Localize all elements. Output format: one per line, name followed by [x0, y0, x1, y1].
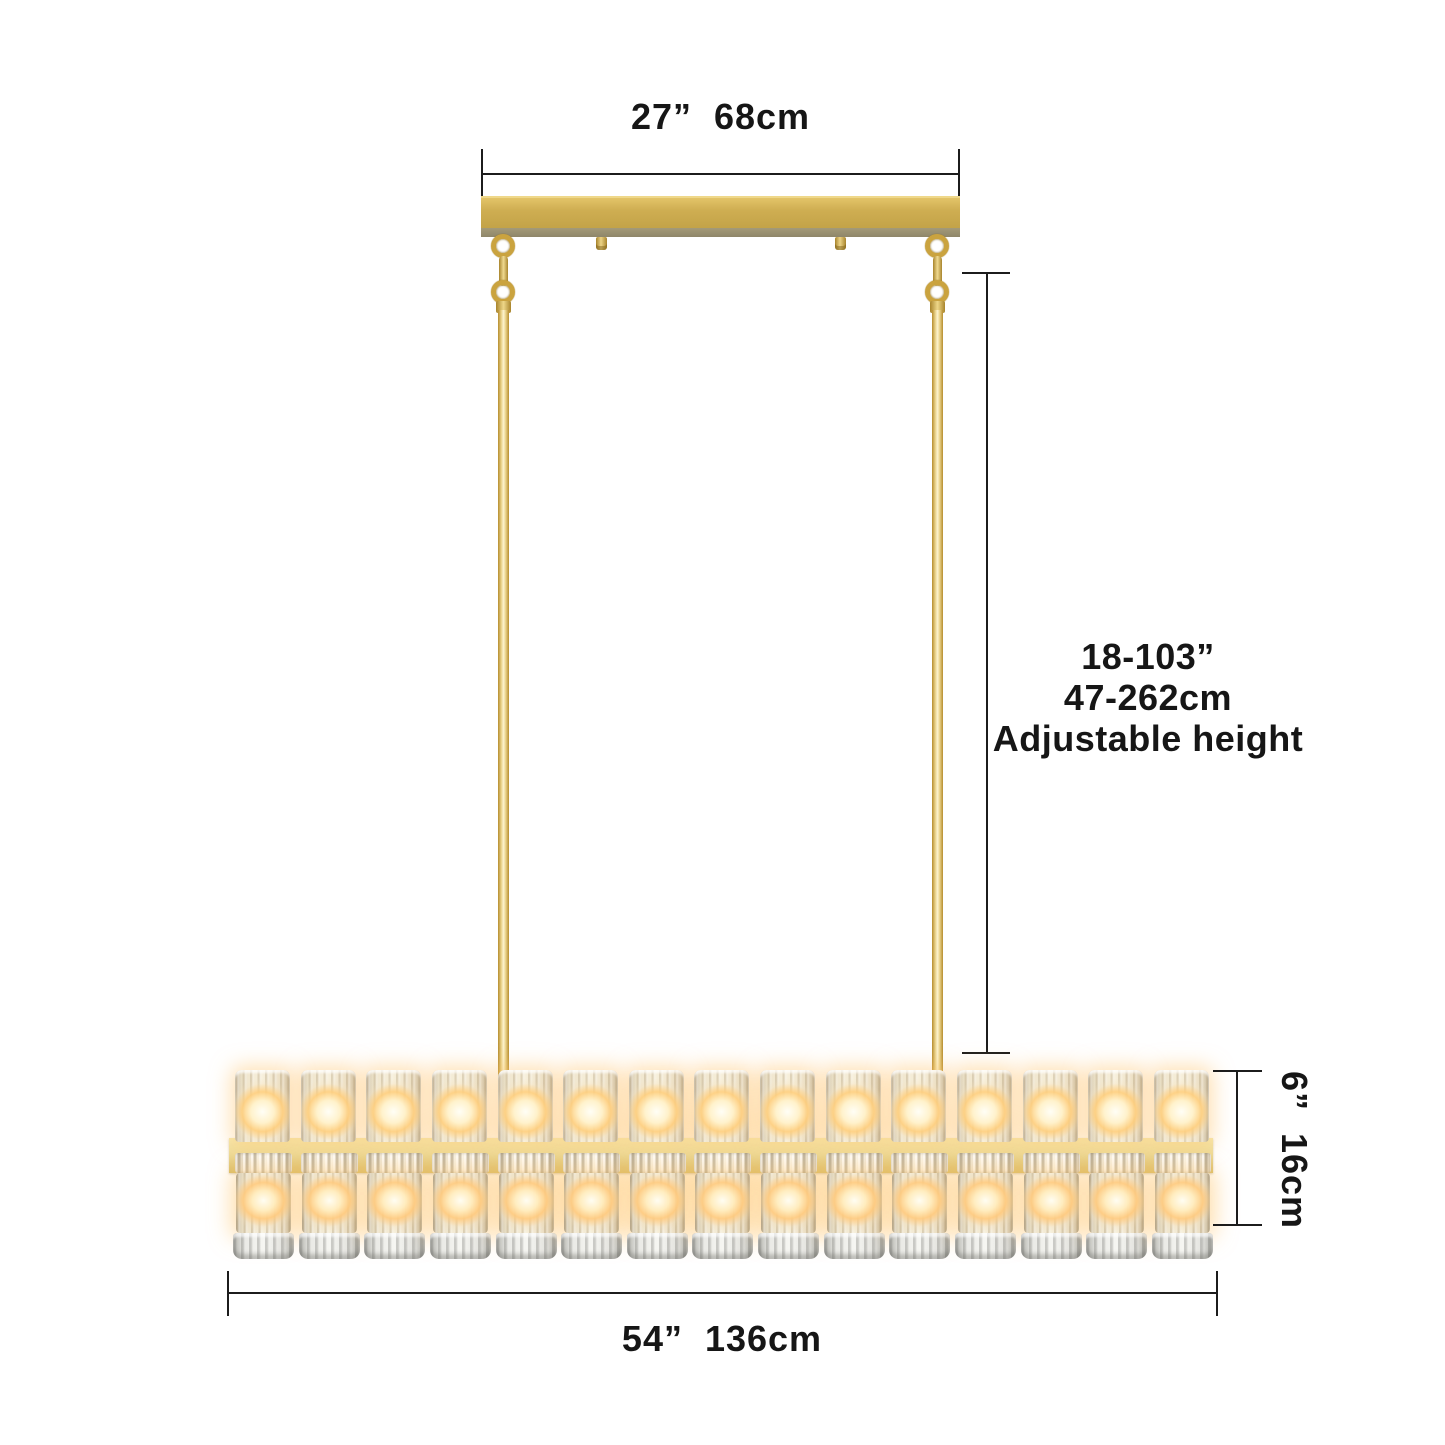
crystal-shade-bottom — [302, 1153, 357, 1259]
crystal-shade-top — [563, 1070, 618, 1142]
crystal-shade-body — [630, 1173, 685, 1233]
crystal-shade-foot — [692, 1233, 753, 1259]
crystal-shade-bottom — [236, 1153, 291, 1259]
crystal-shade-bottom — [695, 1153, 750, 1259]
crystal-shade-cap — [432, 1153, 489, 1173]
height-note: Adjustable height — [958, 718, 1338, 759]
crystal-shade-foot — [889, 1233, 950, 1259]
crystal-shade-foot — [758, 1233, 819, 1259]
crystal-shade-body — [1024, 1173, 1079, 1233]
crystal-shade-body — [695, 1173, 750, 1233]
crystal-shade-body — [1089, 1173, 1144, 1233]
crystal-shade-top — [498, 1070, 553, 1142]
crystal-shade-foot — [1086, 1233, 1147, 1259]
crystal-shade-top — [301, 1070, 356, 1142]
crystal-shade-bottom — [958, 1153, 1013, 1259]
fixture-width-dimension-line — [228, 1292, 1218, 1294]
ceiling-canopy — [481, 196, 960, 228]
crystal-shade-bottom — [1024, 1153, 1079, 1259]
crystal-shade-cap — [629, 1153, 686, 1173]
crystal-shade-body — [367, 1173, 422, 1233]
fixture-height-label: 6” 16cm — [1273, 1071, 1315, 1229]
crystal-shade-foot — [1152, 1233, 1213, 1259]
crystal-shade-bottom — [761, 1153, 816, 1259]
fixture-height-dimension-line — [1236, 1070, 1238, 1226]
crystal-shade-foot — [824, 1233, 885, 1259]
crystal-shade-body — [236, 1173, 291, 1233]
crystal-shade-cap — [826, 1153, 883, 1173]
crystal-shade-foot — [1021, 1233, 1082, 1259]
crystal-shade-top — [826, 1070, 881, 1142]
crystal-shade-top — [694, 1070, 749, 1142]
crystal-shade-cap — [301, 1153, 358, 1173]
crystal-shade-bottom — [827, 1153, 882, 1259]
crystal-shade-body — [433, 1173, 488, 1233]
crystal-shade-top — [629, 1070, 684, 1142]
crystal-shade-top — [891, 1070, 946, 1142]
fixture-width-tick-right — [1216, 1271, 1218, 1316]
crystal-shade-body — [499, 1173, 554, 1233]
crystal-shade-cap — [1154, 1153, 1211, 1173]
fixture-width-label: 54” 136cm — [472, 1318, 972, 1360]
crystal-shade-bottom — [630, 1153, 685, 1259]
crystal-shade-bottom — [1089, 1153, 1144, 1259]
crystal-shade-foot — [364, 1233, 425, 1259]
crystal-shade-cap — [957, 1153, 1014, 1173]
crystal-shade-body — [564, 1173, 619, 1233]
crystal-shade-top — [957, 1070, 1012, 1142]
ceiling-canopy-underside — [481, 228, 960, 237]
crystal-shade-body — [302, 1173, 357, 1233]
crystal-shade-cap — [760, 1153, 817, 1173]
canopy-width-tick-left — [481, 149, 483, 197]
hanger-rod-left — [498, 310, 509, 1140]
crystal-shade-cap — [563, 1153, 620, 1173]
crystal-shade-cap — [1088, 1153, 1145, 1173]
hanger-rod-right — [932, 310, 943, 1140]
crystal-shade-body — [761, 1173, 816, 1233]
canopy-width-dimension-line — [482, 173, 959, 175]
canopy-screw-right — [835, 237, 846, 250]
crystal-shade-cap — [891, 1153, 948, 1173]
crystal-shade-bottom — [892, 1153, 947, 1259]
canopy-width-tick-right — [958, 149, 960, 197]
fixture-height-tick-bottom — [1213, 1224, 1262, 1226]
chandelier-dimension-diagram: 27” 68cm 18-103” 47-262cm Adjustable hei… — [0, 0, 1445, 1445]
crystal-shade-top — [1023, 1070, 1078, 1142]
canopy-width-label: 27” 68cm — [481, 96, 960, 138]
crystal-shade-foot — [561, 1233, 622, 1259]
hanger-ring-top-right — [925, 234, 949, 258]
crystal-shade-foot — [233, 1233, 294, 1259]
height-range-cm: 47-262cm — [958, 677, 1338, 718]
crystal-shade-cap — [498, 1153, 555, 1173]
crystal-shade-top — [235, 1070, 290, 1142]
crystal-shade-foot — [627, 1233, 688, 1259]
canopy-screw-left — [596, 237, 607, 250]
crystal-shade-bottom — [499, 1153, 554, 1259]
crystal-shade-bottom — [433, 1153, 488, 1259]
crystal-shade-top — [760, 1070, 815, 1142]
height-range-inches: 18-103” — [958, 636, 1338, 677]
crystal-shade-cap — [235, 1153, 292, 1173]
crystal-shade-bottom — [564, 1153, 619, 1259]
crystal-shade-bottom — [367, 1153, 422, 1259]
crystal-shade-body — [892, 1173, 947, 1233]
crystal-shade-top — [366, 1070, 421, 1142]
crystal-shade-foot — [430, 1233, 491, 1259]
crystal-shade-top — [1088, 1070, 1143, 1142]
crystal-shade-foot — [299, 1233, 360, 1259]
hanger-ring-top-left — [491, 234, 515, 258]
crystal-shade-bottom — [1155, 1153, 1210, 1259]
crystal-shade-cap — [1023, 1153, 1080, 1173]
crystal-shade-body — [1155, 1173, 1210, 1233]
crystal-shade-body — [958, 1173, 1013, 1233]
crystal-shade-foot — [955, 1233, 1016, 1259]
crystal-shade-foot — [496, 1233, 557, 1259]
height-label-block: 18-103” 47-262cm Adjustable height — [958, 636, 1338, 759]
crystal-shade-top — [1154, 1070, 1209, 1142]
crystal-shade-cap — [694, 1153, 751, 1173]
crystal-shade-top — [432, 1070, 487, 1142]
crystal-shade-body — [827, 1173, 882, 1233]
crystal-shade-cap — [366, 1153, 423, 1173]
